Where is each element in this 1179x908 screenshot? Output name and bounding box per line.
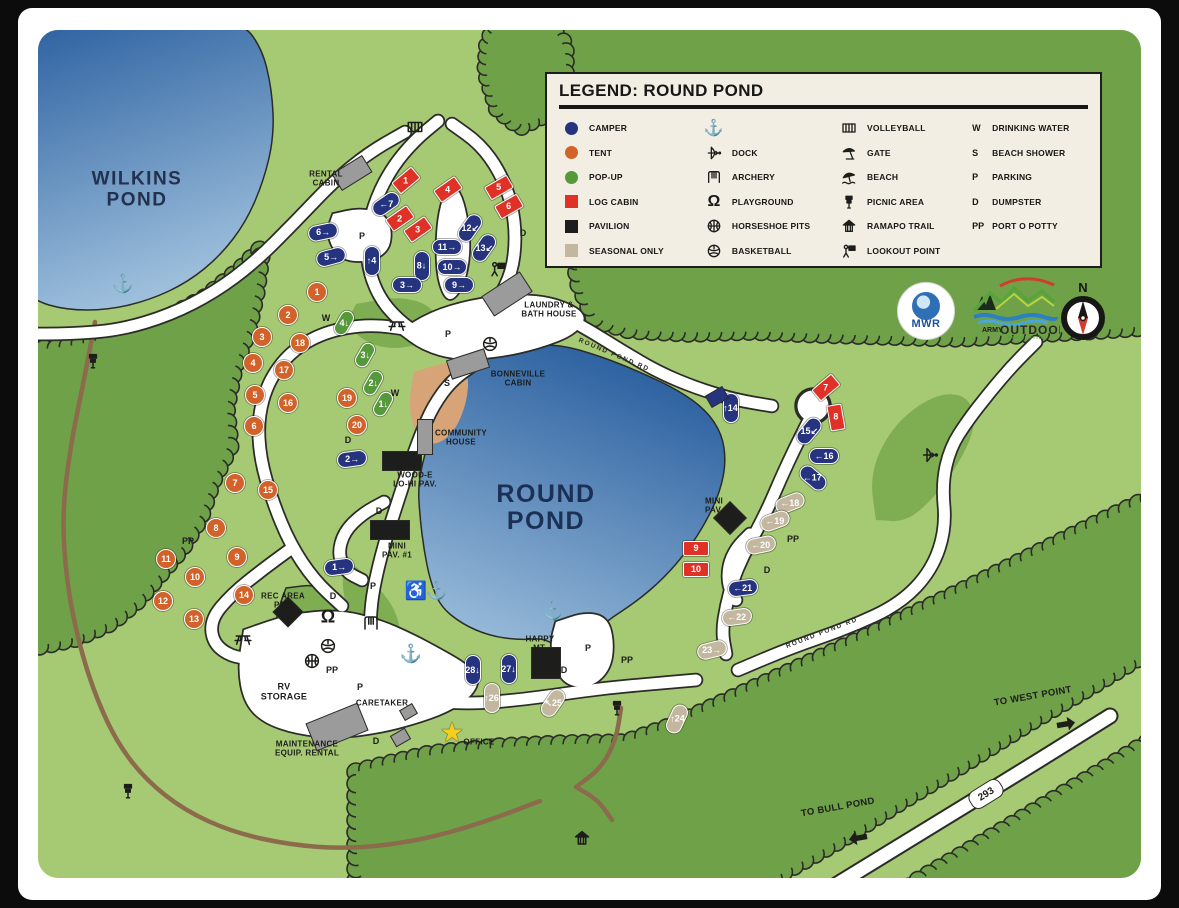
legend-item-anchor-0: ⚓	[702, 116, 837, 141]
legend-item-beach: BEACH	[837, 165, 972, 190]
legend-item-camper: CAMPER	[559, 116, 702, 141]
mwr-logo-text: MWR	[912, 318, 941, 330]
legend-label: POP-UP	[589, 172, 623, 182]
legend-label: RAMAPO TRAIL	[867, 221, 935, 231]
compass-icon	[1060, 295, 1106, 341]
legend-item-horseshoe-pits: HORSESHOE PITS	[702, 214, 837, 239]
court-icon	[837, 120, 861, 136]
compass-rose: N	[1060, 280, 1106, 341]
legend-label: HORSESHOE PITS	[732, 221, 810, 231]
legend-label: DOCK	[732, 148, 758, 158]
map-legend: LEGEND: ROUND POND CAMPERTENTPOP-UPLOG C…	[545, 72, 1102, 268]
legend-label: PLAYGROUND	[732, 197, 794, 207]
legend-item-log-cabin: LOG CABIN	[559, 190, 702, 215]
legend-item-volleyball: VOLLEYBALL	[837, 116, 972, 141]
pavilion-swatch	[565, 220, 578, 233]
legend-item-tent: TENT	[559, 141, 702, 166]
ball-cross-icon	[702, 218, 726, 234]
legend-item-lookout-point: LOOKOUT POINT	[837, 239, 972, 264]
legend-label: DRINKING WATER	[992, 123, 1069, 133]
legend-item-seasonal-only: SEASONAL ONLY	[559, 239, 702, 264]
house-icon	[837, 218, 861, 234]
legend-label: BEACH	[867, 172, 898, 182]
legend-item-picnic-area: PICNIC AREA	[837, 190, 972, 215]
legend-title: LEGEND: ROUND POND	[559, 81, 1088, 101]
legend-item-gate: GATE	[837, 141, 972, 166]
mwr-logo: MWR	[897, 282, 955, 340]
bow-icon	[702, 145, 726, 161]
svg-text:RECREATION: RECREATION	[1008, 335, 1047, 340]
legend-item-pavilion: PAVILION	[559, 214, 702, 239]
lookout-icon	[837, 243, 861, 259]
swing-icon	[702, 169, 726, 185]
legend-label: PARKING	[992, 172, 1032, 182]
legend-abbrev-p: P	[972, 172, 988, 182]
legend-label: LOG CABIN	[589, 197, 639, 207]
log-cabin-swatch	[565, 195, 578, 208]
legend-item-dock: DOCK	[702, 141, 837, 166]
mwr-globe-icon	[912, 292, 940, 320]
beach-icon	[837, 169, 861, 185]
legend-label: BASKETBALL	[732, 246, 792, 256]
legend-item-dumpster: DDUMPSTER	[972, 190, 1088, 215]
camper-swatch	[565, 122, 578, 135]
round-pond-map: ←76→5→↑48↓3→11→10→9→12↙13↙2→1→↑1415↙←16←…	[0, 0, 1179, 908]
tent-swatch	[565, 146, 578, 159]
legend-item-playground: ΩPLAYGROUND	[702, 190, 837, 215]
legend-abbrev-w: W	[972, 123, 988, 133]
legend-item-archery: ARCHERY	[702, 165, 837, 190]
signpost-icon	[837, 194, 861, 210]
army-logo-art: ARMY OUTDOOR RECREATION	[968, 276, 1060, 340]
legend-col-activities: ⚓DOCKARCHERYΩPLAYGROUNDHORSESHOE PITSBAS…	[702, 116, 837, 263]
legend-col-services: WDRINKING WATERSBEACH SHOWERPPARKINGDDUM…	[972, 116, 1088, 263]
legend-label: VOLLEYBALL	[867, 123, 926, 133]
legend-col-features: VOLLEYBALLGATEBEACHPICNIC AREARAMAPO TRA…	[837, 116, 972, 263]
legend-label: ARCHERY	[732, 172, 775, 182]
legend-abbrev-s: S	[972, 148, 988, 158]
legend-item-port-o-potty: PPPORT O POTTY	[972, 214, 1088, 239]
playground-icon: Ω	[702, 193, 726, 211]
gate-icon	[837, 145, 861, 161]
legend-item-drinking-water: WDRINKING WATER	[972, 116, 1088, 141]
legend-label: LOOKOUT POINT	[867, 246, 940, 256]
army-outdoor-recreation-logo: ARMY OUTDOOR RECREATION	[968, 276, 1060, 345]
legend-label: SEASONAL ONLY	[589, 246, 664, 256]
legend-label: TENT	[589, 148, 612, 158]
legend-abbrev-pp: PP	[972, 221, 988, 231]
ball-panel-icon	[702, 243, 726, 259]
legend-label: PORT O POTTY	[992, 221, 1058, 231]
legend-item-parking: PPARKING	[972, 165, 1088, 190]
legend-columns: CAMPERTENTPOP-UPLOG CABINPAVILIONSEASONA…	[559, 116, 1088, 263]
legend-label: PICNIC AREA	[867, 197, 924, 207]
seasonal-only-swatch	[565, 244, 578, 257]
legend-divider	[559, 105, 1088, 109]
legend-label: CAMPER	[589, 123, 627, 133]
legend-label: BEACH SHOWER	[992, 148, 1065, 158]
legend-col-sites: CAMPERTENTPOP-UPLOG CABINPAVILIONSEASONA…	[559, 116, 702, 263]
legend-item-beach-shower: SBEACH SHOWER	[972, 141, 1088, 166]
legend-abbrev-d: D	[972, 197, 988, 207]
legend-item-basketball: BASKETBALL	[702, 239, 837, 264]
legend-label: PAVILION	[589, 221, 629, 231]
legend-item-ramapo-trail: RAMAPO TRAIL	[837, 214, 972, 239]
pop-up-swatch	[565, 171, 578, 184]
legend-label: DUMPSTER	[992, 197, 1041, 207]
legend-item-pop-up: POP-UP	[559, 165, 702, 190]
anchor-icon: ⚓	[702, 118, 726, 138]
legend-label: GATE	[867, 148, 891, 158]
compass-north-label: N	[1078, 280, 1087, 295]
